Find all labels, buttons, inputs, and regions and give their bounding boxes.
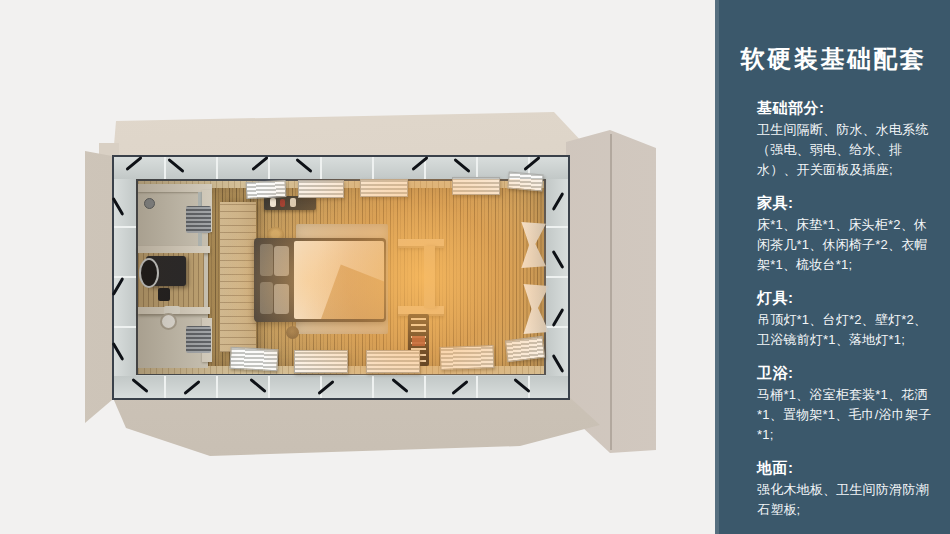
spec-sections: 基础部分: 卫生间隔断、防水、水电系统（强电、弱电、给水、排水）、开关面板及插座…: [757, 98, 936, 520]
toilet: [160, 313, 177, 330]
window-band-right: [546, 179, 568, 376]
decor-bottle: [270, 198, 276, 207]
shower-head: [144, 198, 155, 209]
window-blind: [507, 172, 543, 192]
decor-bottle: [280, 199, 285, 207]
spec-section-furniture: 家具: 床*1、床垫*1、床头柜*2、休闲茶几*1、休闲椅子*2、衣帽架*1、梳…: [757, 193, 936, 275]
bed-pillow: [260, 244, 273, 276]
towel-radiator: [186, 326, 211, 353]
window-blind: [452, 177, 500, 195]
bathroom-wall-top: [138, 184, 212, 192]
spec-heading-bathroom: 卫浴:: [757, 363, 936, 383]
shelf-post: [424, 246, 435, 308]
window-blind: [505, 336, 545, 362]
spec-section-bathroom: 卫浴: 马桶*1、浴室柜套装*1、花洒*1、置物架*1、毛巾/浴巾架子*1;: [757, 363, 936, 445]
window-blind: [440, 345, 495, 370]
spec-section-lighting: 灯具: 吊顶灯*1、台灯*2、壁灯*2、卫浴镜前灯*1、落地灯*1;: [757, 288, 936, 350]
floorplan-render: [0, 0, 715, 534]
spec-heading-furniture: 家具:: [757, 193, 936, 213]
wardrobe-headboard-wall: [220, 202, 256, 352]
window-band-bottom: [114, 376, 568, 398]
red-patterned-textile: [412, 336, 425, 346]
bed-pillow: [274, 284, 289, 314]
window-blind: [229, 347, 278, 371]
spec-heading-lighting: 灯具:: [757, 288, 936, 308]
spec-section-flooring: 地面: 强化木地板、卫生间防滑防潮石塑板;: [757, 458, 936, 520]
bed-pillow: [260, 282, 273, 314]
window-blind: [294, 350, 348, 373]
spec-body-furniture: 床*1、床垫*1、床头柜*2、休闲茶几*1、休闲椅子*2、衣帽架*1、梳妆台*1…: [757, 215, 936, 275]
spec-body-flooring: 强化木地板、卫生间防滑防潮石塑板;: [757, 480, 936, 520]
spec-body-lighting: 吊顶灯*1、台灯*2、壁灯*2、卫浴镜前灯*1、落地灯*1;: [757, 310, 936, 350]
bedside-stool: [286, 326, 299, 339]
toiletry-unit: [158, 288, 170, 301]
spec-heading-flooring: 地面:: [757, 458, 936, 478]
shelf-board: [398, 239, 444, 248]
spec-body-bathroom: 马桶*1、浴室柜套装*1、花洒*1、置物架*1、毛巾/浴巾架子*1;: [757, 385, 936, 445]
decor-bottle: [290, 198, 296, 207]
spec-panel: 软硬装基础配套 基础部分: 卫生间隔断、防水、水电系统（强电、弱电、给水、排水）…: [715, 0, 950, 534]
bathroom-partition-shelf: [138, 246, 210, 253]
vanity-mirror: [139, 258, 159, 288]
window-blind: [298, 180, 344, 198]
bed-pillow: [274, 246, 289, 276]
window-blind: [360, 179, 408, 197]
spec-heading-basics: 基础部分:: [757, 98, 936, 118]
window-blind: [246, 180, 287, 199]
right-panel-seam: [610, 134, 612, 450]
spec-body-basics: 卫生间隔断、防水、水电系统（强电、弱电、给水、排水）、开关面板及插座;: [757, 120, 936, 180]
towel-radiator: [186, 206, 211, 233]
panel-title: 软硬装基础配套: [741, 44, 936, 74]
spec-section-basics: 基础部分: 卫生间隔断、防水、水电系统（强电、弱电、给水、排水）、开关面板及插座…: [757, 98, 936, 180]
window-blind: [366, 350, 420, 373]
